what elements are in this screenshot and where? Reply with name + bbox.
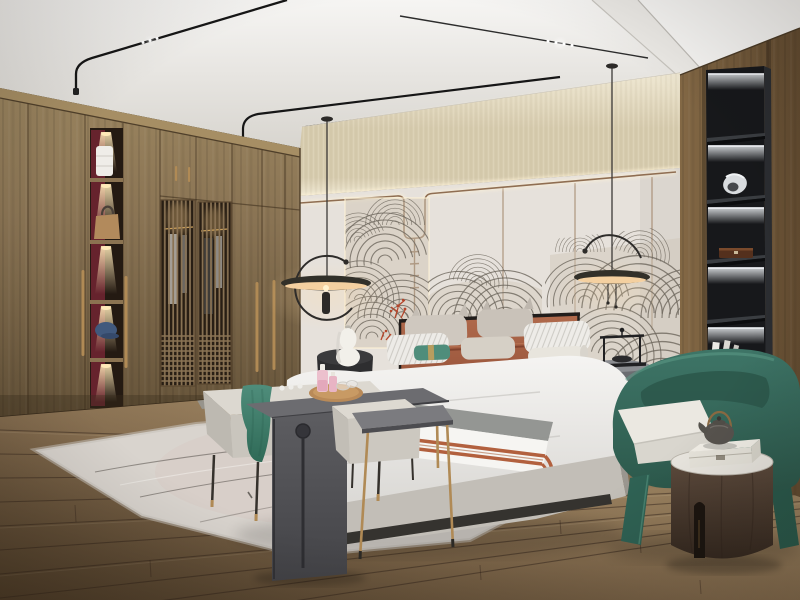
bedroom-render [0, 0, 800, 600]
vignette [0, 0, 800, 600]
scene-canvas [0, 0, 800, 600]
